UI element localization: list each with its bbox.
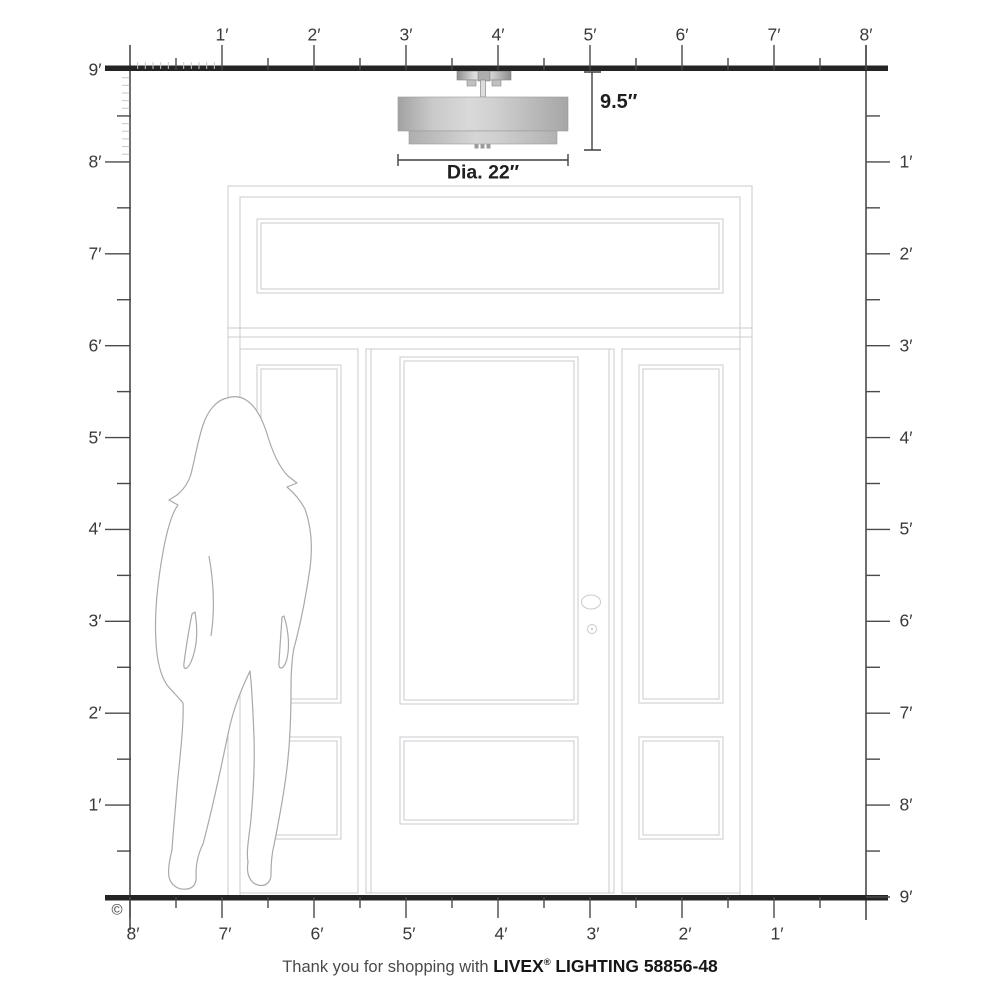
fixture-height-label: 9.5″ [600, 92, 637, 112]
brand-name: LIVEX® [493, 956, 551, 976]
sidelight-right-upper-panel-inner [643, 369, 719, 699]
right-ruler-label: 4′ [899, 429, 912, 447]
left-ruler-label: 6′ [88, 337, 101, 355]
woman-silhouette [155, 397, 311, 890]
diagram-art [0, 0, 1000, 1000]
copyright-symbol: © [111, 902, 122, 919]
door-lower-panel-inner [404, 741, 574, 820]
left-ruler-label: 7′ [88, 245, 101, 263]
top-ruler-label: 2′ [307, 26, 320, 44]
fixture-stem [481, 80, 486, 97]
bottom-ruler-label: 4′ [494, 925, 507, 943]
sidelight-right-frame [622, 349, 740, 893]
bottom-ruler-label: 6′ [310, 925, 323, 943]
top-ruler-label: 6′ [675, 26, 688, 44]
fixture-diameter-label: Dia. 22″ [447, 163, 519, 183]
bottom-ruler-label: 2′ [678, 925, 691, 943]
right-ruler-label: 6′ [899, 613, 912, 631]
bottom-ruler-label: 5′ [402, 925, 415, 943]
scale-diagram: 1′2′3′4′5′6′7′8′9′8′7′6′5′4′3′2′1′1′2′3′… [0, 0, 1000, 1000]
fixture-mount-tab-right [492, 80, 501, 86]
caption-model: LIGHTING 58856-48 [555, 956, 717, 976]
fixture-finial-2 [481, 144, 485, 149]
door-deadbolt-center [591, 628, 593, 630]
right-ruler-label: 9′ [899, 888, 912, 906]
door-knob [582, 595, 601, 609]
fixture-finial-1 [475, 144, 479, 149]
right-ruler-label: 2′ [899, 245, 912, 263]
caption: Thank you for shopping with LIVEX® LIGHT… [0, 956, 1000, 978]
top-ruler-label: 4′ [491, 26, 504, 44]
left-ruler-label: 4′ [88, 521, 101, 539]
right-ruler-label: 3′ [899, 337, 912, 355]
right-ruler-label: 1′ [899, 153, 912, 171]
sidelight-right-lower-panel [639, 737, 723, 839]
top-ruler-label: 5′ [583, 26, 596, 44]
left-ruler-label: 8′ [88, 153, 101, 171]
bottom-ruler-label: 7′ [218, 925, 231, 943]
right-ruler-label: 8′ [899, 796, 912, 814]
top-ruler-label: 1′ [215, 26, 228, 44]
fixture-mount-tab-left [467, 80, 476, 86]
top-ruler-label: 3′ [399, 26, 412, 44]
transom-window-inner [261, 223, 719, 289]
caption-prefix: Thank you for shopping with [282, 958, 488, 976]
ceiling-fixture [398, 70, 568, 149]
bottom-ruler-label: 1′ [770, 925, 783, 943]
right-ruler-label: 5′ [899, 521, 912, 539]
top-ruler-label: 8′ [859, 26, 872, 44]
left-ruler-label: 2′ [88, 704, 101, 722]
door-slab [366, 349, 614, 893]
fixture-drum-shade [398, 97, 568, 131]
left-ruler-label: 3′ [88, 613, 101, 631]
door-upper-panel-inner [404, 361, 574, 700]
registered-mark: ® [544, 957, 551, 968]
sidelight-right-lower-panel-inner [643, 741, 719, 835]
left-ruler-label: 1′ [88, 796, 101, 814]
door-inset-frame [240, 197, 740, 897]
fixture-drum-tier2 [409, 131, 557, 144]
transom-window [257, 219, 723, 293]
left-ruler-label: 9′ [88, 61, 101, 79]
bottom-ruler-label: 3′ [586, 925, 599, 943]
door-lower-panel [400, 737, 578, 824]
fixture-finial-3 [487, 144, 491, 149]
top-ruler-label: 7′ [767, 26, 780, 44]
fixture-canopy-hub [478, 70, 490, 81]
door-upper-panel [400, 357, 578, 704]
bottom-ruler-label: 8′ [126, 925, 139, 943]
sidelight-right-upper-panel [639, 365, 723, 703]
left-ruler-label: 5′ [88, 429, 101, 447]
right-ruler-label: 7′ [899, 704, 912, 722]
